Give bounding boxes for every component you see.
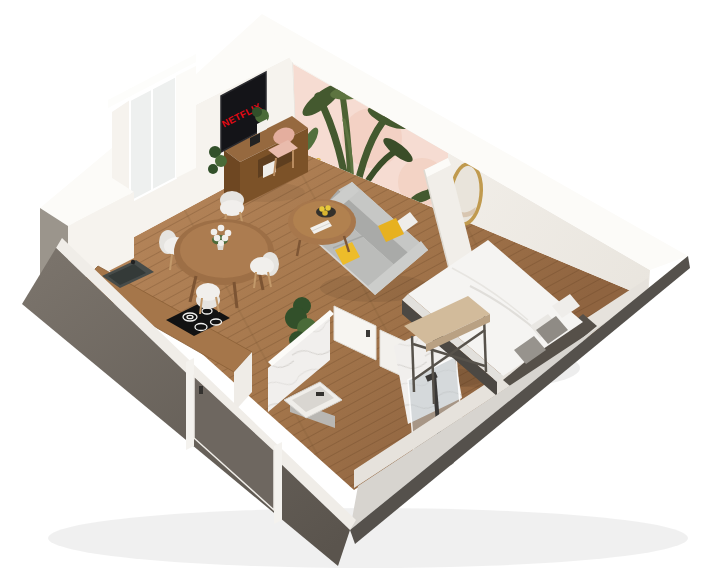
apartment-3d-scene: NETFLIX	[0, 0, 710, 573]
basin-faucet	[316, 392, 324, 396]
door-handle	[199, 386, 203, 394]
floorplan-render: NETFLIX	[0, 0, 710, 573]
